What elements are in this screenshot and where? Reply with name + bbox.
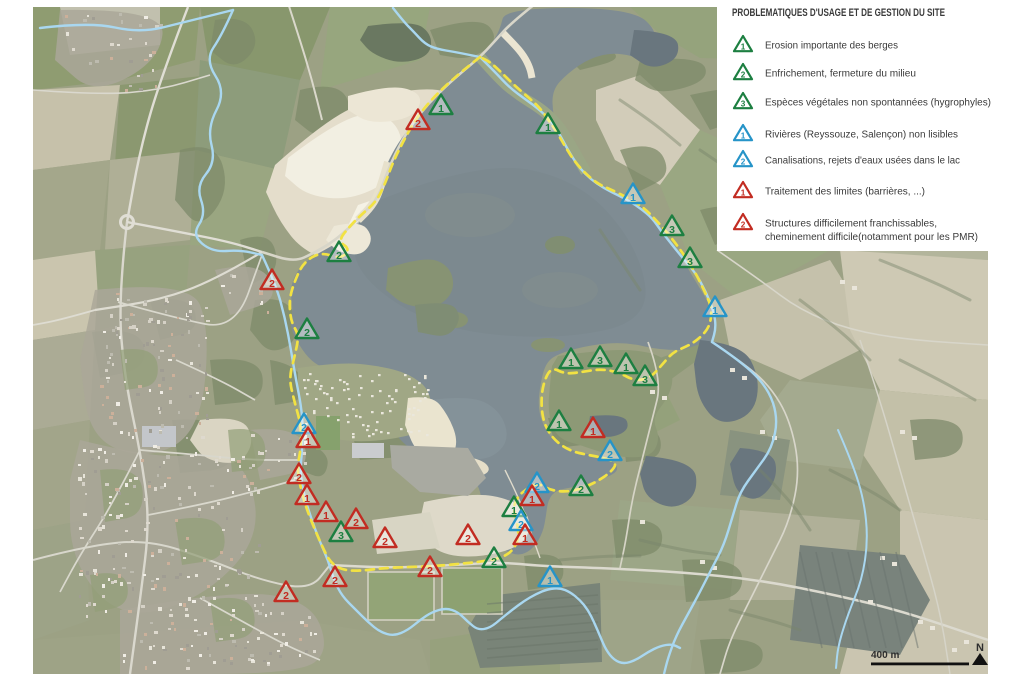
svg-text:1: 1 xyxy=(623,362,629,374)
svg-text:2: 2 xyxy=(332,575,338,587)
svg-text:1: 1 xyxy=(741,189,746,198)
svg-text:1: 1 xyxy=(323,510,329,522)
svg-text:2: 2 xyxy=(427,565,433,577)
svg-text:2: 2 xyxy=(269,278,275,290)
svg-text:3: 3 xyxy=(642,374,648,386)
svg-text:Canalisations, rejets d'eaux u: Canalisations, rejets d'eaux usées dans … xyxy=(765,156,960,167)
svg-text:1: 1 xyxy=(547,575,553,587)
svg-text:1: 1 xyxy=(511,505,517,517)
svg-text:1: 1 xyxy=(522,533,528,545)
svg-text:cheminement difficile(notammen: cheminement difficile(notamment pour les… xyxy=(765,232,978,243)
svg-text:2: 2 xyxy=(382,536,388,548)
svg-text:2: 2 xyxy=(465,533,471,545)
svg-text:3: 3 xyxy=(338,530,344,542)
svg-text:3: 3 xyxy=(687,256,693,268)
svg-text:1: 1 xyxy=(545,122,551,134)
svg-text:2: 2 xyxy=(741,158,746,167)
svg-text:1: 1 xyxy=(741,132,746,141)
svg-text:3: 3 xyxy=(741,100,746,109)
svg-text:2: 2 xyxy=(491,556,497,568)
svg-text:2: 2 xyxy=(578,484,584,496)
svg-text:2: 2 xyxy=(415,118,421,130)
svg-text:PROBLEMATIQUES D'USAGE ET DE G: PROBLEMATIQUES D'USAGE ET DE GESTION DU … xyxy=(732,7,945,19)
svg-text:Traitement des limites (barriè: Traitement des limites (barrières, ...) xyxy=(765,187,925,198)
svg-text:2: 2 xyxy=(336,250,342,262)
svg-text:2: 2 xyxy=(353,517,359,529)
svg-text:1: 1 xyxy=(304,493,310,505)
svg-text:1: 1 xyxy=(438,103,444,115)
svg-text:1: 1 xyxy=(712,305,718,317)
svg-text:1: 1 xyxy=(590,426,596,438)
svg-text:1: 1 xyxy=(741,43,746,52)
svg-text:2: 2 xyxy=(741,221,746,230)
svg-text:Structures difficilement franc: Structures difficilement franchissables, xyxy=(765,219,937,230)
svg-text:3: 3 xyxy=(669,224,675,236)
svg-text:1: 1 xyxy=(568,357,574,369)
svg-text:2: 2 xyxy=(304,327,310,339)
svg-text:1: 1 xyxy=(556,419,562,431)
svg-text:N: N xyxy=(976,642,984,654)
svg-text:Espèces végétales non spontann: Espèces végétales non spontannées (hygro… xyxy=(765,98,991,109)
svg-text:2: 2 xyxy=(283,590,289,602)
svg-text:1: 1 xyxy=(305,436,311,448)
svg-text:2: 2 xyxy=(741,71,746,80)
svg-text:3: 3 xyxy=(597,355,603,367)
svg-text:1: 1 xyxy=(529,494,535,506)
svg-text:Enfrichement, fermeture du mil: Enfrichement, fermeture du milieu xyxy=(765,69,916,80)
svg-text:1: 1 xyxy=(630,192,636,204)
svg-text:Erosion importante des berges: Erosion importante des berges xyxy=(765,41,898,52)
svg-text:400 m: 400 m xyxy=(871,650,899,661)
svg-text:2: 2 xyxy=(607,449,613,461)
svg-text:2: 2 xyxy=(296,472,302,484)
svg-text:Rivières (Reyssouze, Salençon): Rivières (Reyssouze, Salençon) non lisib… xyxy=(765,130,958,141)
